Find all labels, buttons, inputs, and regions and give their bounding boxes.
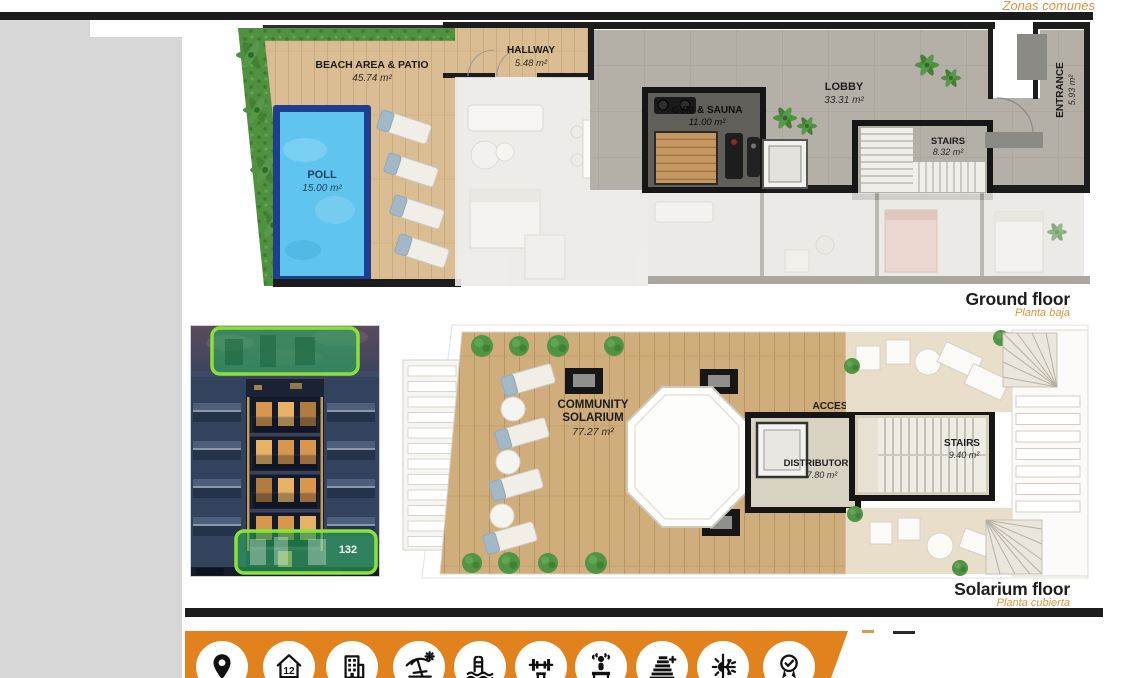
lobby-size: 33.31 m²	[824, 95, 864, 106]
hallway-label: HALLWAY	[507, 45, 555, 56]
gym-size: 11.00 m²	[689, 117, 727, 128]
spiral-stair	[1003, 333, 1057, 387]
distributor-label: DISTRIBUTOR	[784, 458, 849, 469]
top-divider-bar	[0, 12, 1093, 20]
solarium-stairs-size: 9.40 m²	[949, 450, 981, 460]
amenity-house-12-icon: 12	[263, 641, 315, 678]
svg-text:12: 12	[283, 666, 295, 677]
amenity-building-icon	[326, 641, 378, 678]
dash-orange	[862, 630, 874, 633]
amenity-climate-icon	[697, 641, 749, 678]
lobby-label: LOBBY	[825, 81, 864, 93]
amenity-sauna-icon	[575, 641, 627, 678]
pool: POLL 15.00 m²	[273, 105, 371, 283]
sauna-benches	[655, 132, 717, 184]
bottom-divider-bar	[185, 608, 1103, 617]
beach-area: BEACH AREA & PATIO 45.74 m² POLL 15.00 m…	[236, 25, 461, 287]
solarium-floor-caption: Solarium floor Planta cubierta	[954, 580, 1070, 610]
distributor-size: 7.80 m²	[807, 470, 839, 480]
dash-black	[893, 631, 915, 634]
ground-floor-caption: Ground floor Planta baja	[965, 290, 1070, 320]
solarium-label-line1: COMMUNITY	[558, 399, 629, 411]
ground-floor-plan: BEACH AREA & PATIO 45.74 m² POLL 15.00 m…	[185, 20, 1090, 288]
amenity-energy-rating-icon	[636, 641, 688, 678]
spiral-stair	[986, 520, 1042, 574]
distributor-room: DISTRIBUTOR 7.80 m²	[748, 415, 858, 510]
lobby-area: GYM & SAUNA 11.00 m² LOBBY 33.31 m²	[588, 22, 1090, 197]
left-sidebar-step	[0, 20, 90, 37]
amenity-gym-icon	[515, 641, 567, 678]
brochure-page: Zonas comunes BEACH AREA & PATIO 45.74 m…	[0, 0, 1125, 678]
ground-stairs: STAIRS 8.32 m²	[855, 123, 990, 197]
left-sidebar	[0, 37, 182, 678]
grass-strip-top	[265, 28, 457, 41]
ground-floor-subtitle: Planta baja	[965, 308, 1070, 320]
entrance-size: 5.93 m²	[1067, 74, 1077, 106]
amenity-location-icon	[196, 641, 248, 678]
upper-terrace	[844, 330, 1012, 412]
elevator	[763, 140, 807, 188]
solarium-size: 77.27 m²	[572, 426, 614, 438]
beach-area-size: 45.74 m²	[352, 73, 392, 84]
solarium-label-line2: SOLARIUM	[562, 412, 623, 424]
solarium-highlight-box	[212, 328, 358, 374]
skylight-vent	[565, 368, 603, 394]
gym-sauna-room: GYM & SAUNA 11.00 m²	[645, 90, 763, 190]
octagon-skylight	[627, 387, 747, 527]
solarium-stairs-label: STAIRS	[944, 438, 980, 449]
beach-area-label: BEACH AREA & PATIO	[315, 59, 428, 71]
amenity-bar: 12	[185, 631, 848, 678]
access-label: ACCES	[812, 401, 847, 412]
pool-size: 15.00 m²	[302, 183, 342, 194]
ground-floor-title: Ground floor	[965, 290, 1070, 308]
amenity-pool-icon	[454, 641, 506, 678]
building-photo: 132	[190, 325, 380, 577]
solarium-stairs: STAIRS 9.40 m²	[852, 412, 992, 498]
side-table	[496, 450, 520, 474]
gym-label: GYM & SAUNA	[671, 105, 742, 116]
unit-badge: 132	[339, 544, 357, 556]
entrance-label: ENTRANCE	[1055, 62, 1066, 118]
apartments-band	[648, 193, 1090, 284]
side-table	[490, 504, 514, 528]
ground-highlight-box: 132	[236, 531, 376, 573]
ground-stairs-label: STAIRS	[931, 136, 965, 147]
side-table	[501, 397, 525, 421]
hallway-size: 5.48 m²	[515, 58, 548, 69]
amenity-beach-icon	[393, 641, 445, 678]
hallway: HALLWAY 5.48 m²	[443, 22, 603, 78]
amenity-quality-medal-icon	[763, 641, 815, 678]
solarium-floor-title: Solarium floor	[954, 580, 1070, 598]
solarium-floor-plan: COMMUNITY SOLARIUM 77.27 m² ACCES	[400, 322, 1092, 584]
ground-stairs-size: 8.32 m²	[933, 147, 965, 157]
pool-label: POLL	[307, 169, 337, 181]
